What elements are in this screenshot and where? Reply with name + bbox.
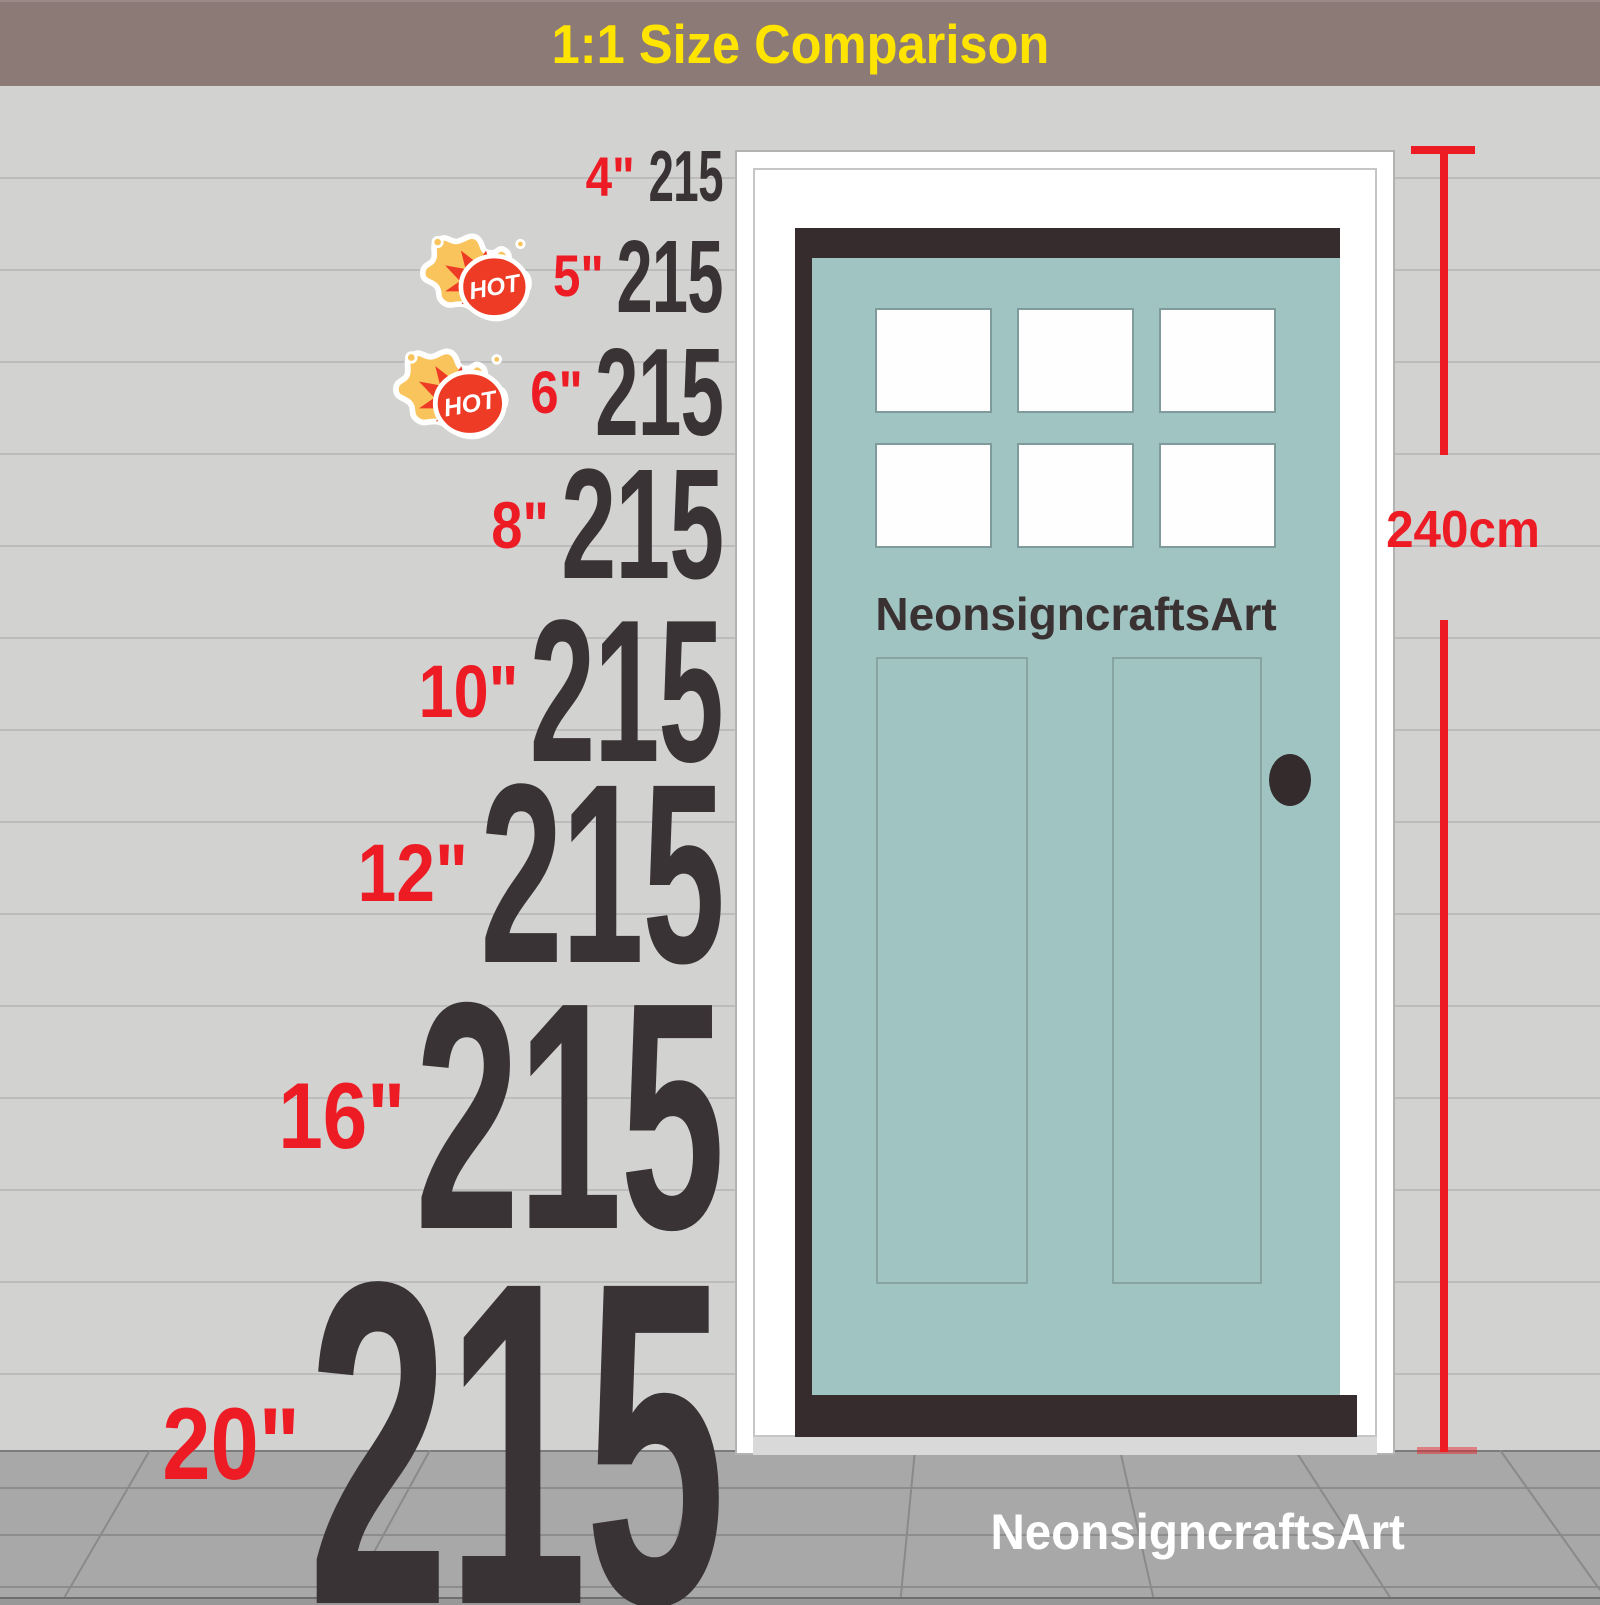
banner-title: 1:1 Size Comparison <box>551 12 1049 76</box>
door-knob <box>1269 754 1311 806</box>
measure-bottom-tick <box>1417 1447 1477 1454</box>
door-height-label: 240cm <box>1382 500 1544 560</box>
size-inches-label: 8" <box>491 492 549 558</box>
size-row-4in: 4"215 <box>577 141 723 213</box>
door-brand-text: NeonsigncraftsArt <box>812 588 1340 640</box>
footer-brand-text: NeonsigncraftsArt <box>991 1503 1390 1561</box>
size-comparison-infographic: 1:1 Size Comparison NeonsigncraftsArt <box>0 0 1600 1605</box>
size-inches-label: 12" <box>358 833 469 915</box>
size-inches-label: 6" <box>530 363 583 423</box>
house-number-sample: 215 <box>617 225 723 328</box>
door-panel <box>876 657 1028 1284</box>
house-number-sample: 215 <box>649 141 723 213</box>
door-window <box>1017 308 1134 413</box>
size-inches-label: 10" <box>419 655 519 729</box>
banner: 1:1 Size Comparison <box>0 0 1600 86</box>
measure-line-upper <box>1440 146 1448 455</box>
door-kick-plate <box>795 1395 1357 1437</box>
door-threshold <box>753 1437 1377 1455</box>
door-panel <box>1112 657 1262 1284</box>
door-window <box>875 443 992 548</box>
size-row-5in: HOT5"215 <box>419 225 723 328</box>
size-inches-label: 5" <box>553 248 604 306</box>
size-inches-label: 16" <box>278 1069 405 1163</box>
door-window <box>875 308 992 413</box>
door-window <box>1159 308 1276 413</box>
size-row-20in: 20"215 <box>138 1213 723 1605</box>
hot-flame-icon: HOT <box>419 230 540 323</box>
size-inches-label: 20" <box>162 1393 300 1495</box>
measure-line-lower <box>1440 620 1448 1452</box>
door: NeonsigncraftsArt <box>795 228 1340 1437</box>
door-window <box>1159 443 1276 548</box>
door-window <box>1017 443 1134 548</box>
house-number-sample: 215 <box>308 1213 723 1605</box>
size-inches-label: 4" <box>586 149 635 205</box>
hot-flame-icon: HOT <box>392 345 517 441</box>
